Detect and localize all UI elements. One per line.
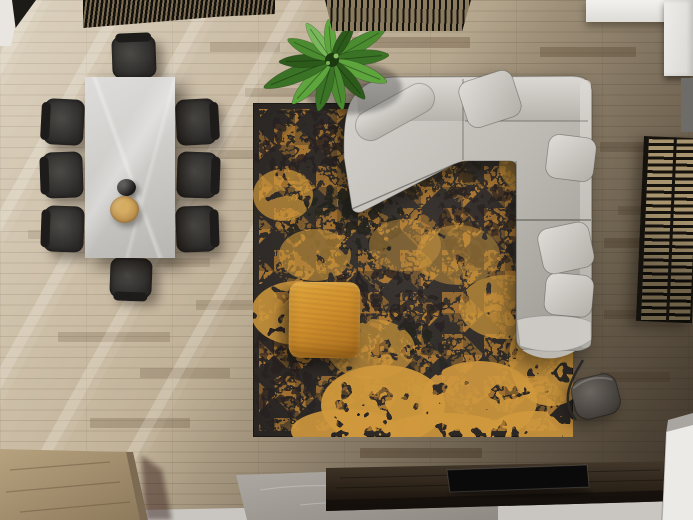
dining-chair — [109, 257, 152, 298]
chair-backrest — [115, 32, 151, 42]
dining-table — [85, 77, 175, 258]
wooden-bowl — [110, 196, 139, 223]
chair-backrest — [209, 102, 220, 140]
chair-backrest — [113, 291, 148, 301]
dining-chair — [43, 98, 85, 146]
wall-panel-gray — [681, 78, 693, 132]
chair-backrest — [210, 157, 220, 195]
dining-chair — [175, 98, 217, 146]
dining-chair — [43, 205, 85, 252]
chair-backrest — [209, 209, 219, 247]
dining-chair — [176, 151, 218, 198]
dining-chair — [42, 151, 84, 198]
chair-backrest — [40, 102, 51, 140]
chair-backrest — [40, 209, 50, 247]
living-room-render: Bird's-eye 3D render: white marble dinin… — [0, 0, 693, 520]
dining-chair — [175, 205, 217, 252]
dining-chair — [111, 35, 156, 79]
slatted-screen-right — [636, 136, 693, 323]
slatted-ceiling-panel-right — [325, 0, 471, 31]
chair-backrest — [39, 157, 49, 195]
dining-area — [0, 0, 693, 520]
teapot — [117, 179, 136, 196]
wall-column-top-right — [664, 0, 693, 76]
